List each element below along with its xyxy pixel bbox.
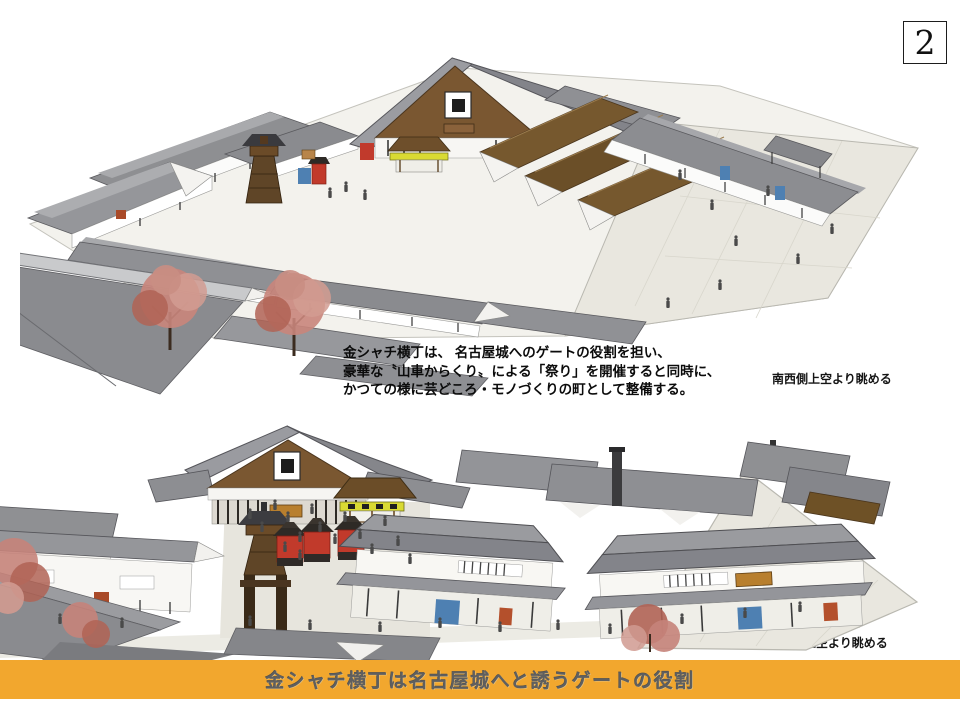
top-aerial-rendering bbox=[20, 6, 940, 398]
yellow-pavilion bbox=[388, 137, 450, 172]
description-line-2: 豪華な〝山車からくり〟による「祭り」を開催すると同時に、 bbox=[343, 363, 673, 382]
description-line-1: 金シャチ横丁は、 名古屋城へのゲートの役割を担い、 bbox=[343, 344, 673, 363]
banner-title-text: 金シャチ横丁は名古屋城へと誘うゲートの役割 bbox=[265, 666, 695, 693]
bottom-aerial-rendering bbox=[0, 412, 960, 660]
right-machiya-2 bbox=[581, 522, 878, 639]
page-number-value: 2 bbox=[915, 26, 936, 59]
back-center-rows bbox=[456, 447, 758, 525]
title-banner: 金シャチ横丁は名古屋城へと誘うゲートの役割 bbox=[0, 660, 960, 699]
caption-southwest-view: 南西側上空より眺める bbox=[772, 370, 892, 387]
slide: { "page": { "number": "2" }, "descriptio… bbox=[0, 0, 960, 720]
description-text: 金シャチ横丁は、 名古屋城へのゲートの役割を担い、 豪華な〝山車からくり〟による… bbox=[343, 344, 673, 400]
page-number: 2 bbox=[903, 21, 947, 64]
description-line-3: かつての様に芸どころ・モノづくりの町として整備する。 bbox=[343, 381, 673, 400]
right-machiya-1 bbox=[335, 512, 570, 632]
